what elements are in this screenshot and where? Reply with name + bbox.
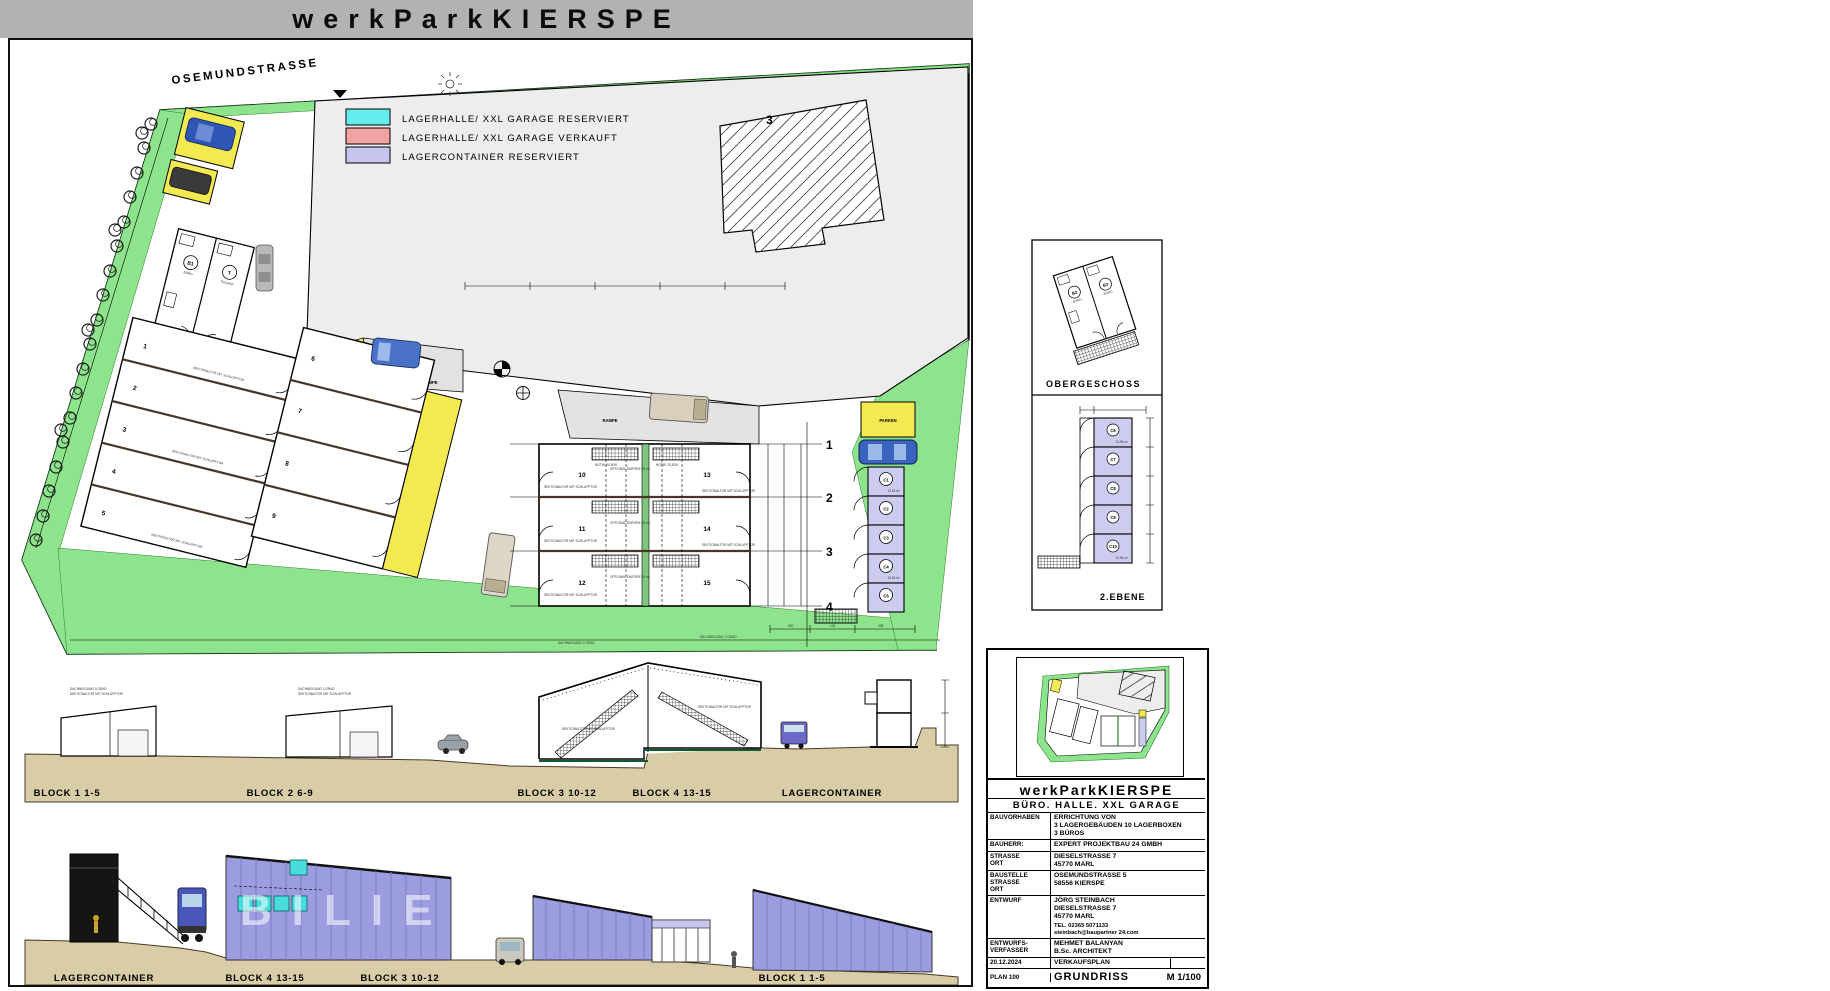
note-stair: NOTW. 20,5/26 [656,463,678,467]
street-label: OSEMUNDSTRASSE [171,57,319,87]
sections-lower: BILIEN LAGERCONTAINER BLOCK 4 13-15 BLOC… [25,854,958,985]
person-1 [93,915,99,921]
note-dach: DACHNEIGUNG 3 GRAD [70,687,107,691]
section-car [438,735,468,754]
roof-window [290,860,307,875]
note-tor: SEKTIONALTOR MIT SCHLUPFTÜR [702,543,756,547]
sun-symbol [438,72,462,96]
sections-upper: DACHNEIGUNG 3 GRAD SEKTIONALTOR MIT SCHL… [25,635,958,802]
dim-530: 530 [788,624,794,628]
note-tor: SEKTIONALTOR MIT SCHLUPFTÜR [562,727,616,731]
plan-number: PLAN 100 [988,973,1051,982]
label-strasse: STRASSE [990,853,1048,860]
container-c7: C7 [1110,457,1116,462]
survey-marker-1 [494,361,510,377]
dim-299: 299 [878,624,884,628]
grid-row-1: 1 [826,438,833,452]
unit-13: 13 [703,472,711,479]
label-bauherr: BAUHERR: [988,840,1051,850]
legend-swatch-reserviert [346,109,390,125]
entwurf-line3: 45770 MARL [1054,913,1202,921]
note-dach: DACHNEIGUNG 3 GRAD [700,635,737,639]
note-tor: SEKTIONALTOR MIT SCHLUPFTÜR [298,692,352,696]
section-label-block1: BLOCK 1 1-5 [34,788,101,799]
elevation-truck [178,888,206,942]
container-c4: C4 [883,565,889,570]
site-plan: RAMPE RAMPE 3 OSEMUNDSTRASSE [22,57,969,654]
row-strasse: STRASSE ORT DIESELSTRASSE 7 45770 MARL [988,852,1205,871]
note-tor: SEKTIONALTOR MIT SCHLUPFTÜR [698,705,752,709]
section-label-container: LAGERCONTAINER [782,788,882,799]
plan-scale: M 1/100 [1167,972,1205,983]
label-baustelle-ort: ORT [990,886,1048,893]
mini-plan-box [1016,657,1184,777]
title-block-table: werkParkKIERSPE BÜRO. HALLE. XXL GARAGE … [988,778,1205,985]
car-gray [256,245,273,291]
container-c6: C6 [1110,428,1116,433]
parken-label: PARKEN [879,418,896,423]
container-c1: C1 [883,478,889,483]
note-tor: SEKTIONALTOR MIT SCHLUPFTÜR [702,489,756,493]
verfasser-line2: B.Sc. ARCHITEKT [1054,948,1202,956]
elevation-block2 [533,896,710,962]
detail-area: 13,94 m² [1115,556,1128,560]
elevation-lagercontainer [70,854,186,944]
legend-swatch-verkauft [346,128,390,144]
drawing-title-bar: werkParkKIERSPE [0,0,973,38]
note-tor: SEKTIONALTOR MIT SCHLUPFTÜR [544,539,598,543]
bauvorhaben-line1: ERRICHTUNG VON [1054,814,1202,822]
label-entwurf: ENTWURF [988,896,1051,938]
plan-name: GRUNDRISS [1051,969,1167,985]
container-c3: C3 [883,536,889,541]
container-c9: C9 [1110,515,1116,520]
existing-building-number: 3 [766,113,773,127]
unit-12: 12 [578,580,586,587]
legend-label-reserviert: LAGERHALLE/ XXL GARAGE RESERVIERT [402,114,630,125]
entwurf-email: steinbach@baupartner 24.com [1054,930,1202,937]
container-c10: C10 [1109,544,1117,549]
unit-11: 11 [579,526,586,533]
container-c5: C5 [883,594,889,599]
elevation-van [496,938,524,965]
section-truck [781,722,807,749]
ebene-stairs [1038,556,1080,568]
screenshot-stage: werkParkKIERSPE [0,0,1830,991]
legend-label-verkauft: LAGERHALLE/ XXL GARAGE VERKAUFT [402,133,618,144]
drawing-title: werkParkKIERSPE [292,4,681,35]
road-arrow [333,90,347,98]
row-date: 20.12.2024 VERKAUFSPLAN [988,958,1205,969]
section-label-block2: BLOCK 2 6-9 [247,788,314,799]
row-baustelle: BAUSTELLE STRASSE ORT OSEMUNDSTRASSE 5 5… [988,871,1205,896]
detail-panels-svg: B2 BÜRO B3 BÜRO OBERGESCHOSS C6 C7 C8 [1028,238,1168,613]
unit-10: 10 [578,472,586,479]
container-area: 13,94 m² [887,576,900,580]
baustelle-line2: 58556 KIERSPE [1054,880,1202,888]
section2-label-container: LAGERCONTAINER [54,973,154,984]
container-c2: C2 [883,507,889,512]
entwurf-line1: JÖRG STEINBACH [1054,897,1202,905]
baustelle-line1: OSEMUNDSTRASSE 5 [1054,872,1202,880]
verfasser-line1: MEHMET BALANYAN [1054,940,1202,948]
container-c8: C8 [1110,486,1116,491]
label-baustelle-strasse: STRASSE [990,879,1048,886]
dim-130: 130 [830,624,836,628]
note-dach: DACHNEIGUNG 3 GRAD [558,641,595,645]
legend-swatch-container [346,147,390,163]
label-verfasser2: VERFASSER [990,947,1048,954]
note-dach: DACHNEIGUNG 3 GRAD [298,687,335,691]
note-empore: OPTIONAL EMPORE 15 m² [610,575,650,579]
section2-label-block4: BLOCK 4 13-15 [225,973,304,984]
outdoor-stairs [815,609,857,623]
unit-14: 14 [703,526,711,533]
title-block: werkParkKIERSPE BÜRO. HALLE. XXL GARAGE … [986,648,1209,989]
label-verfasser1: ENTWURFS- [990,940,1048,947]
note-tor: SEKTIONALTOR MIT SCHLUPFTÜR [544,485,598,489]
row-bauvorhaben: BAUVORHABEN ERRICHTUNG VON 3 LAGERGEBÄUD… [988,813,1205,840]
unit-15: 15 [703,580,711,587]
grid-row-3: 3 [826,545,833,559]
drawing-sheet: RAMPE RAMPE 3 OSEMUNDSTRASSE [8,38,973,987]
section-block3-4: SEKTIONALTOR MIT SCHLUPFTÜR SEKTIONALTOR… [539,635,761,761]
person-2 [731,951,737,957]
detail-area: 13,94 m² [1115,440,1128,444]
section-label-block4: BLOCK 4 13-15 [632,788,711,799]
note-empore: OPTIONAL EMPORE 15 m² [610,521,650,525]
row-bauherr: BAUHERR: EXPERT PROJEKTBAU 24 GMBH [988,840,1205,851]
titleblock-project: werkParkKIERSPE [988,780,1205,799]
ebene-label: 2.EBENE [1100,592,1146,602]
site-plan-svg: RAMPE RAMPE 3 OSEMUNDSTRASSE [10,40,971,985]
van-blue [371,338,421,369]
note-stair: NOTW. 20,5/26 [595,463,617,467]
section2-label-block3: BLOCK 3 10-12 [360,973,439,984]
car-blue-parken [859,440,917,464]
bauherr-value: EXPERT PROJEKTBAU 24 GMBH [1051,840,1205,850]
strasse-line1: DIESELSTRASSE 7 [1054,853,1202,861]
note-empore: OPTIONAL EMPORE 15 m² [610,467,650,471]
titleblock-subtitle: BÜRO. HALLE. XXL GARAGE [988,799,1205,813]
watermark: BILIEN [240,886,504,935]
legend-label-container: LAGERCONTAINER RESERVIERT [402,152,580,163]
entwurf-tel: TEL. 02365 5071133 [1054,923,1202,930]
grid-row-2: 2 [826,491,833,505]
label-ort: ORT [990,860,1048,867]
container-area: 13,94 m² [887,489,900,493]
truck-beige-ramp [649,393,709,423]
mini-site-plan [1017,658,1181,774]
section2-label-block1: BLOCK 1 1-5 [759,973,826,984]
label-baustelle: BAUSTELLE [990,872,1048,879]
obergeschoss-label: OBERGESCHOSS [1046,379,1141,389]
plan-type: VERKAUFSPLAN [1051,958,1170,968]
note-tor: SEKTIONALTOR MIT SCHLUPFTÜR [544,593,598,597]
row-entwurf: ENTWURF JÖRG STEINBACH DIESELSTRASSE 7 4… [988,896,1205,939]
entwurf-line2: DIESELSTRASSE 7 [1054,905,1202,913]
strasse-line2: 45770 MARL [1054,861,1202,869]
survey-marker-2 [517,387,530,400]
row-verfasser: ENTWURFS- VERFASSER MEHMET BALANYAN B.Sc… [988,939,1205,958]
elevation-block1 [753,890,932,972]
row-plan: PLAN 100 GRUNDRISS M 1/100 [988,969,1205,985]
ramp-label: RAMPE [602,418,617,423]
bauvorhaben-line3: 3 BÜROS [1054,830,1202,838]
note-tor: SEKTIONALTOR MIT SCHLUPFTÜR [70,692,124,696]
section-label-block3: BLOCK 3 10-12 [517,788,596,799]
plan-date: 20.12.2024 [988,958,1051,968]
label-bauvorhaben: BAUVORHABEN [988,813,1051,839]
